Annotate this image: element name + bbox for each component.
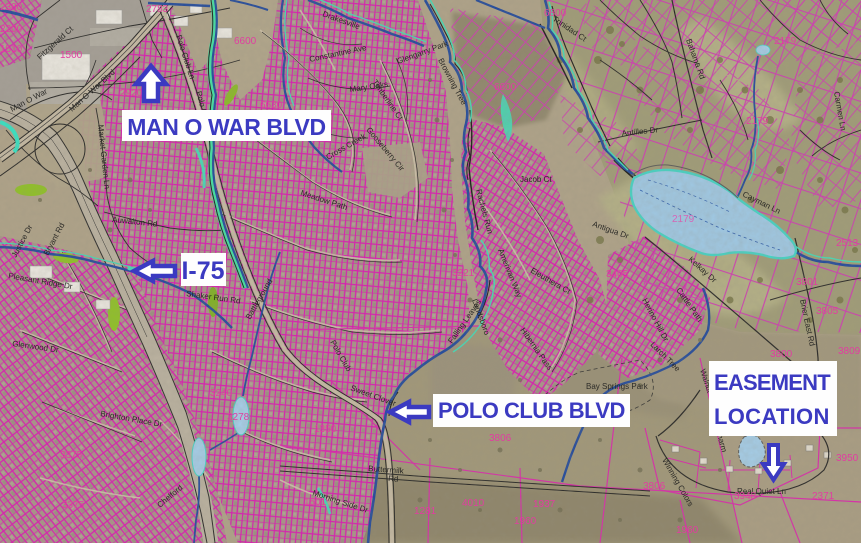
- svg-text:EASEMENT: EASEMENT: [714, 370, 831, 395]
- svg-text:POLO CLUB BLVD: POLO CLUB BLVD: [438, 398, 625, 423]
- svg-text:LOCATION: LOCATION: [714, 404, 830, 429]
- svg-text:I-75: I-75: [181, 257, 224, 285]
- svg-text:MAN O WAR BLVD: MAN O WAR BLVD: [127, 114, 325, 140]
